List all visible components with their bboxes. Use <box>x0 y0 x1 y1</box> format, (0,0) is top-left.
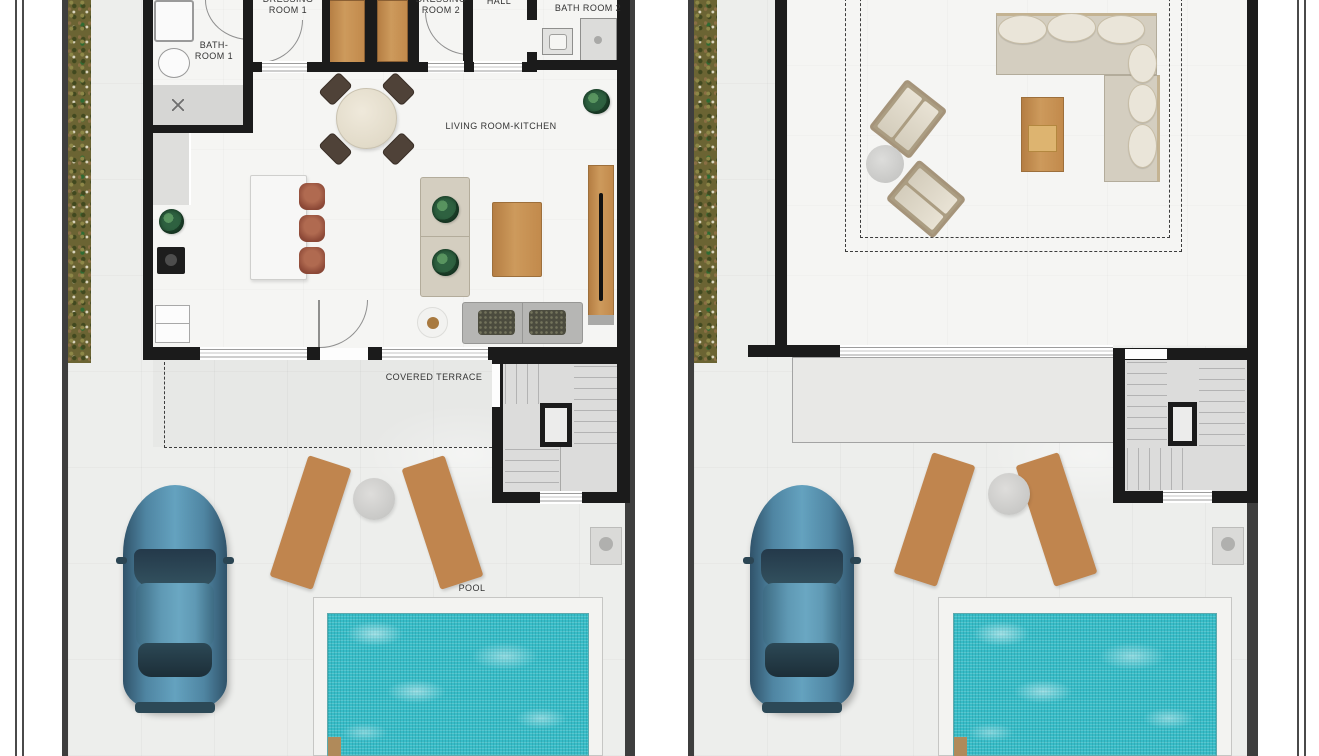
wall-corridor-b <box>307 62 428 72</box>
house-wall-bottom-c <box>368 347 382 360</box>
wall-wardrobe-mid <box>365 0 377 63</box>
pool-water <box>327 613 589 756</box>
wall-dressing1-left <box>322 0 330 63</box>
tv-unit-base <box>588 315 614 325</box>
living-window <box>382 347 488 360</box>
wall-bathroom2-bottom <box>537 60 630 70</box>
sofa-back-pillow <box>998 15 1047 44</box>
plot-border-right-low <box>1247 503 1258 756</box>
kitchen-counter <box>153 133 191 205</box>
fridge <box>155 305 190 343</box>
stair-void <box>1168 402 1197 446</box>
fridge-door-line <box>155 323 190 324</box>
plot-line-right-inner <box>1297 0 1299 756</box>
house-wall-right <box>617 0 630 503</box>
dressing2-threshold <box>428 61 464 73</box>
pool-side-table <box>988 473 1030 515</box>
wall-corridor-a <box>250 62 262 72</box>
toilet <box>158 48 190 78</box>
parked-car <box>119 485 231 715</box>
sofa-secondary-divider <box>522 302 523 344</box>
dining-table <box>336 88 397 149</box>
roof-pouf <box>866 145 904 183</box>
label-bathroom1: BATH-ROOM 1 <box>195 40 233 62</box>
wall-corridor-d <box>522 62 537 72</box>
stair-divider-line <box>560 447 561 492</box>
label-pool: POOL <box>459 583 486 594</box>
outdoor-shower-pad <box>590 527 622 565</box>
parked-car <box>746 485 858 715</box>
wardrobe <box>377 0 408 62</box>
bathroom2-shower-drain <box>594 36 602 44</box>
sofa-back-pillow <box>1047 13 1096 42</box>
label-living: LIVING ROOM-KITCHEN <box>445 121 556 132</box>
car-mirror-right <box>850 557 861 564</box>
car-rear <box>135 702 215 713</box>
wall-corridor-c <box>464 62 474 72</box>
stair-steps <box>1127 362 1167 446</box>
label-hall: HALL <box>487 0 511 7</box>
corner-plant <box>583 89 610 114</box>
outdoor-shower-pad <box>1212 527 1244 565</box>
house-wall-left <box>143 0 153 360</box>
label-terrace: COVERED TERRACE <box>386 372 483 383</box>
stair-steps <box>505 364 545 404</box>
floorplan-sheet: BATH-ROOM 1 DRESSINGROOM 1 DRESSINGROOM … <box>0 0 1319 756</box>
roof-wall-left <box>775 0 787 357</box>
stairwell-door <box>1163 490 1212 503</box>
car-mirror-right <box>223 557 234 564</box>
label-dressing2: DRESSINGROOM 2 <box>416 0 467 16</box>
wall-hall-right <box>527 0 537 20</box>
cooktop-burner <box>165 254 177 266</box>
living-window <box>200 347 307 360</box>
kitchen-plant <box>159 209 184 234</box>
car-mirror-left <box>116 557 127 564</box>
sofa-plant-cushion <box>432 249 459 276</box>
pool-side-table <box>353 478 395 520</box>
car-rear-window <box>765 643 839 677</box>
sofa-dark-pillow <box>478 310 515 335</box>
stairwell-door <box>540 491 582 504</box>
terrace-dashed-left <box>164 362 165 448</box>
covered-terrace-slab <box>792 357 1120 443</box>
car-rear-window <box>138 643 212 677</box>
pool-step <box>954 737 967 756</box>
label-bathroom2: BATH ROOM 2 <box>555 3 621 14</box>
bathroom2-sink-basin <box>549 34 567 50</box>
stair-steps <box>574 366 617 446</box>
bathroom1-laundry-floor <box>153 85 245 128</box>
wall-bathroom1-bottom <box>143 125 253 133</box>
vegetation-strip <box>68 0 91 363</box>
plot-line-right-outer <box>1304 0 1306 756</box>
stairwell-side-opening <box>492 364 500 407</box>
bar-stool <box>299 247 325 274</box>
pool-water <box>953 613 1217 756</box>
car-windshield <box>761 549 843 587</box>
bar-stool <box>299 183 325 210</box>
stair-steps <box>1127 448 1183 490</box>
vegetation-strip <box>694 0 717 363</box>
sofa-side-pillow <box>1128 124 1157 168</box>
sofa-main-divider <box>420 236 470 237</box>
car-roof <box>136 583 214 647</box>
sofa-dark-pillow <box>529 310 566 335</box>
sofa-side-pillow <box>1128 44 1157 83</box>
roof-wall-right <box>1247 0 1258 503</box>
roof-wall-bottom <box>748 345 840 357</box>
stair-steps <box>505 449 559 491</box>
pool-step <box>328 737 341 756</box>
tv-screen <box>599 193 603 301</box>
stairwell-top-opening <box>1125 349 1167 359</box>
stairwell-wall-left <box>1113 348 1125 503</box>
label-dressing1: DRESSINGROOM 1 <box>263 0 314 16</box>
car-roof <box>763 583 841 647</box>
sofa-main <box>420 177 470 297</box>
sofa-side-pillow <box>1128 84 1157 123</box>
stair-void <box>540 403 572 447</box>
car-rear <box>762 702 842 713</box>
plot-line-left-inner <box>22 0 24 756</box>
terrace-door-gap <box>320 348 368 360</box>
dressing1-threshold <box>262 61 307 73</box>
sofa-plant-cushion <box>432 196 459 223</box>
rug-pouf <box>427 317 439 329</box>
wardrobe <box>328 0 365 63</box>
hall-threshold <box>474 61 522 73</box>
roof-window-strip <box>840 345 1113 357</box>
bathtub <box>154 0 194 42</box>
stair-steps <box>1199 368 1245 446</box>
shower-head-symbol <box>172 99 184 111</box>
terrace-dashed-bottom <box>164 447 492 448</box>
house-wall-bottom-a <box>143 347 200 360</box>
car-windshield <box>134 549 216 587</box>
stairwell-wall-top <box>492 353 630 364</box>
roof-coffee-table-tray <box>1028 125 1057 152</box>
coffee-table <box>492 202 542 277</box>
plot-line-left-outer <box>15 0 17 756</box>
car-mirror-left <box>743 557 754 564</box>
bar-stool <box>299 215 325 242</box>
sofa-back-pillow <box>1097 15 1145 44</box>
house-wall-bottom-b <box>307 347 320 360</box>
